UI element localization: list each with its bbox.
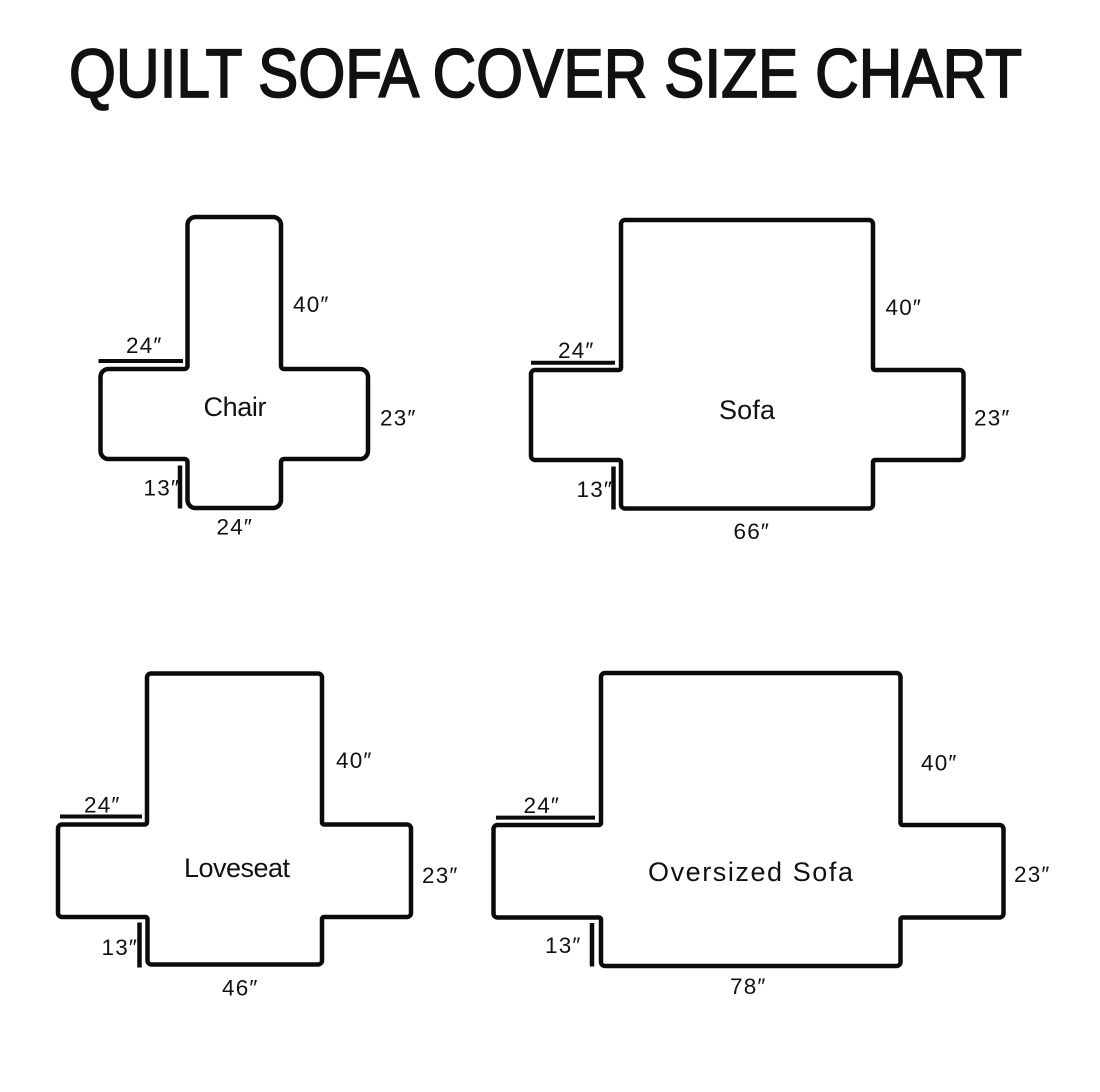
svg-text:23″: 23″ xyxy=(422,863,459,888)
svg-text:23″: 23″ xyxy=(380,406,417,431)
svg-text:66″: 66″ xyxy=(734,519,771,544)
svg-text:40″: 40″ xyxy=(336,748,373,773)
svg-text:24″: 24″ xyxy=(217,515,254,540)
svg-text:46″: 46″ xyxy=(222,976,259,1001)
svg-text:23″: 23″ xyxy=(974,406,1011,431)
svg-text:Oversized Sofa: Oversized Sofa xyxy=(648,857,854,887)
svg-text:13″: 13″ xyxy=(577,477,614,502)
svg-text:40″: 40″ xyxy=(293,292,330,317)
svg-text:24″: 24″ xyxy=(84,793,121,818)
svg-text:24″: 24″ xyxy=(126,333,163,358)
svg-text:13″: 13″ xyxy=(545,933,582,958)
svg-text:40″: 40″ xyxy=(886,295,923,320)
svg-text:24″: 24″ xyxy=(524,793,561,818)
svg-text:13″: 13″ xyxy=(102,935,139,960)
svg-text:13″: 13″ xyxy=(144,476,181,501)
svg-text:78″: 78″ xyxy=(730,974,767,999)
svg-text:24″: 24″ xyxy=(558,338,595,363)
svg-text:Chair: Chair xyxy=(204,392,267,422)
svg-text:Sofa: Sofa xyxy=(719,395,776,425)
svg-text:QUILT SOFA COVER SIZE CHART: QUILT SOFA COVER SIZE CHART xyxy=(69,35,1022,112)
svg-text:Loveseat: Loveseat xyxy=(184,853,290,883)
svg-text:40″: 40″ xyxy=(921,751,958,776)
svg-text:23″: 23″ xyxy=(1014,862,1051,887)
